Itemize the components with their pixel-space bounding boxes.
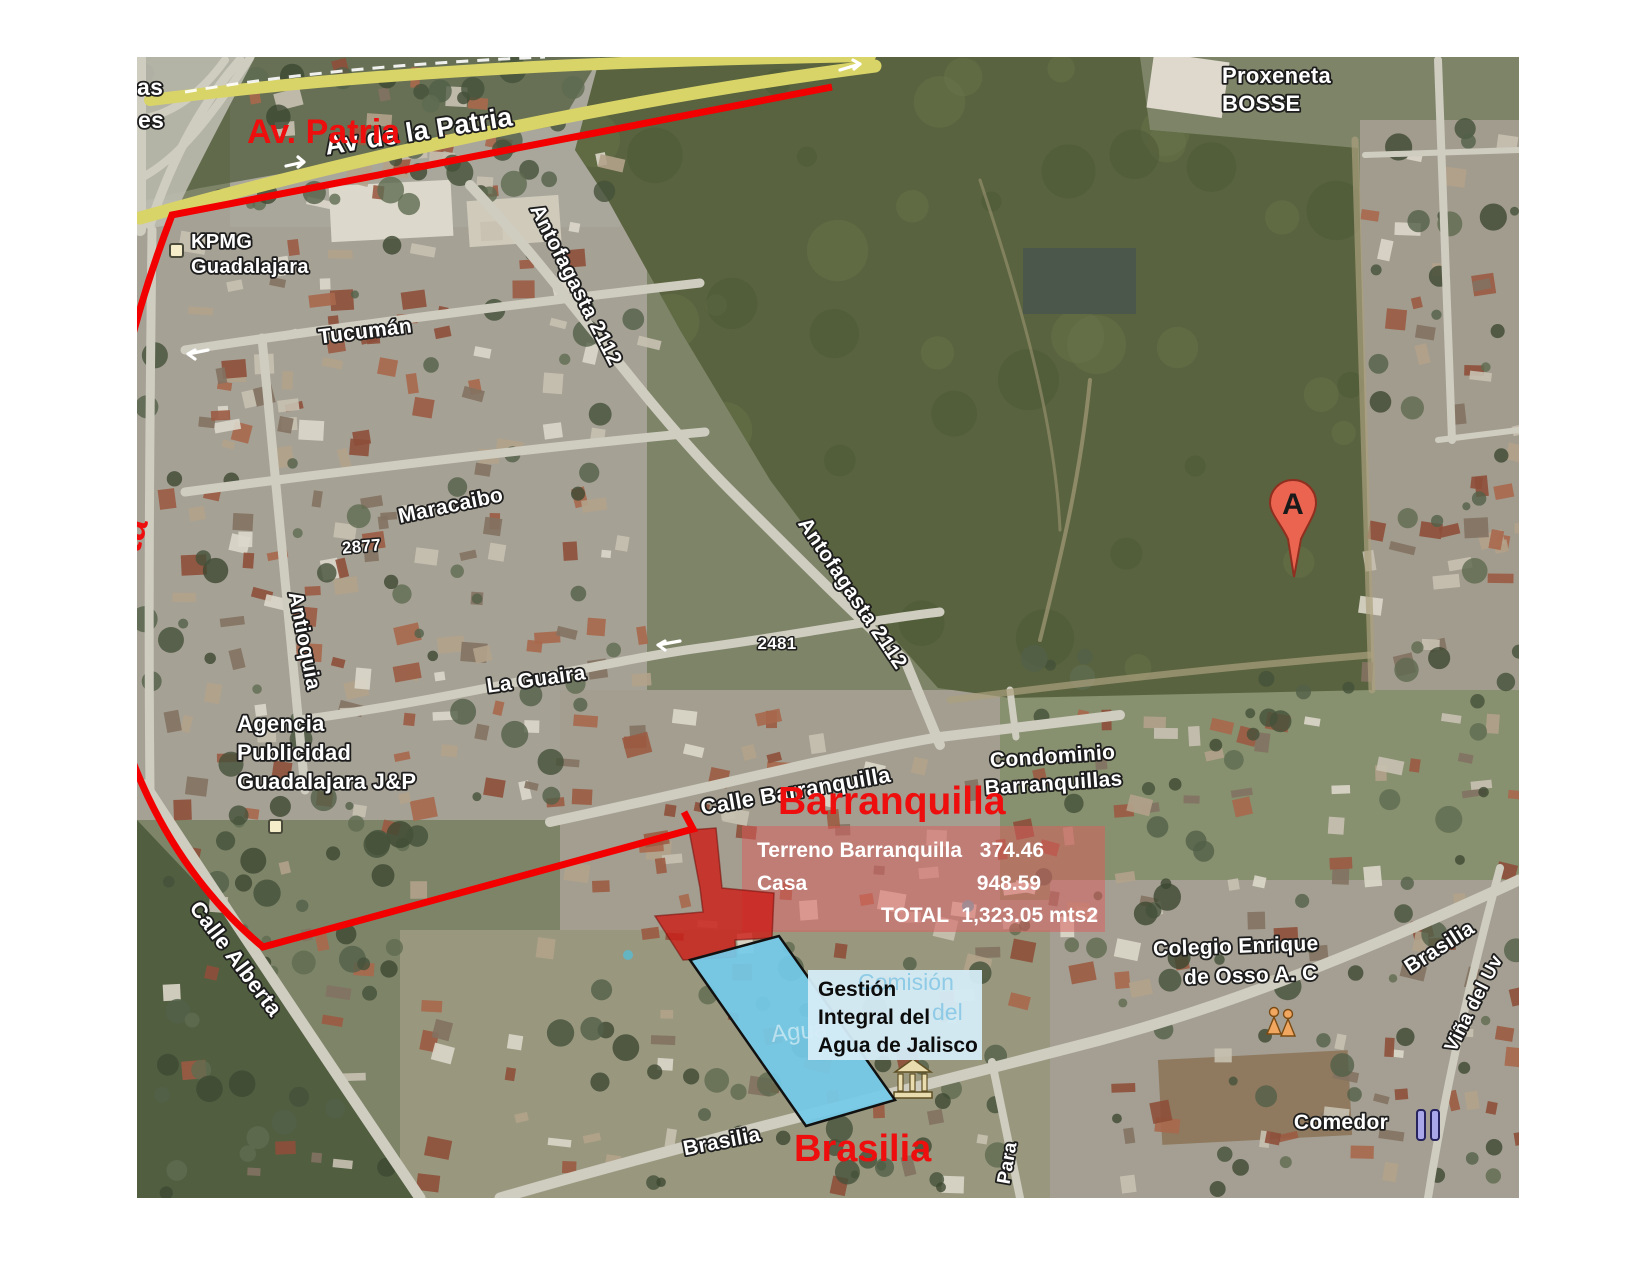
house-number-2481: 2481 [757, 634, 796, 653]
redaction-box [1023, 248, 1136, 314]
agency-box-line2: Integral del [818, 1006, 930, 1029]
agency-label-box: Comisión del Gestión Integral del Agua d… [808, 969, 982, 1060]
total-label: TOTAL [881, 904, 949, 927]
marker-a-letter: A [1282, 488, 1304, 521]
annotation-brasilia: Brasilia [794, 1128, 932, 1170]
poi-label-colegio-line2: de Osso A. C [1184, 962, 1318, 990]
casa-label: Casa [757, 872, 808, 895]
casa-value: 948.59 [977, 872, 1041, 895]
agencia-poi-marker[interactable] [269, 820, 282, 833]
agency-box-line1: Gestión [818, 978, 896, 1001]
total-value: 1,323.05 mts2 [961, 904, 1098, 927]
watermark-del: del [932, 999, 963, 1025]
poi-label-kpmg-line2: Guadalajara [191, 256, 309, 278]
street-label-edge-es: es [138, 107, 164, 133]
agency-box-line3: Agua de Jalisco [818, 1034, 978, 1057]
poi-label-proxeneta-line1: Proxeneta [1222, 63, 1332, 88]
poi-label-comedor: Comedor [1294, 1111, 1388, 1134]
street-label-edge-as: as [137, 74, 163, 100]
kpmg-poi-marker[interactable] [170, 244, 183, 257]
poi-label-agencia-line3: Guadalajara J&P [237, 769, 416, 794]
terreno-value: 374.46 [980, 839, 1044, 862]
terreno-label: Terreno Barranquilla [757, 839, 962, 862]
annotation-barranquilla: Barranquilla [778, 780, 1006, 823]
poi-label-proxeneta-line2: BOSSE [1222, 91, 1301, 116]
poi-label-kpmg-line1: KPMG [191, 231, 252, 253]
annotation-av-patria: Av. Patria [247, 113, 401, 151]
poi-label-agencia-line2: Publicidad [237, 740, 351, 765]
annotated-satellite-map-page: as es Av de la Patria Antofagasta 2112 T… [0, 0, 1650, 1275]
house-number-2877: 2877 [341, 535, 382, 557]
satellite-map[interactable]: as es Av de la Patria Antofagasta 2112 T… [0, 0, 1650, 1275]
poi-label-agencia-line1: Agencia [237, 711, 325, 736]
